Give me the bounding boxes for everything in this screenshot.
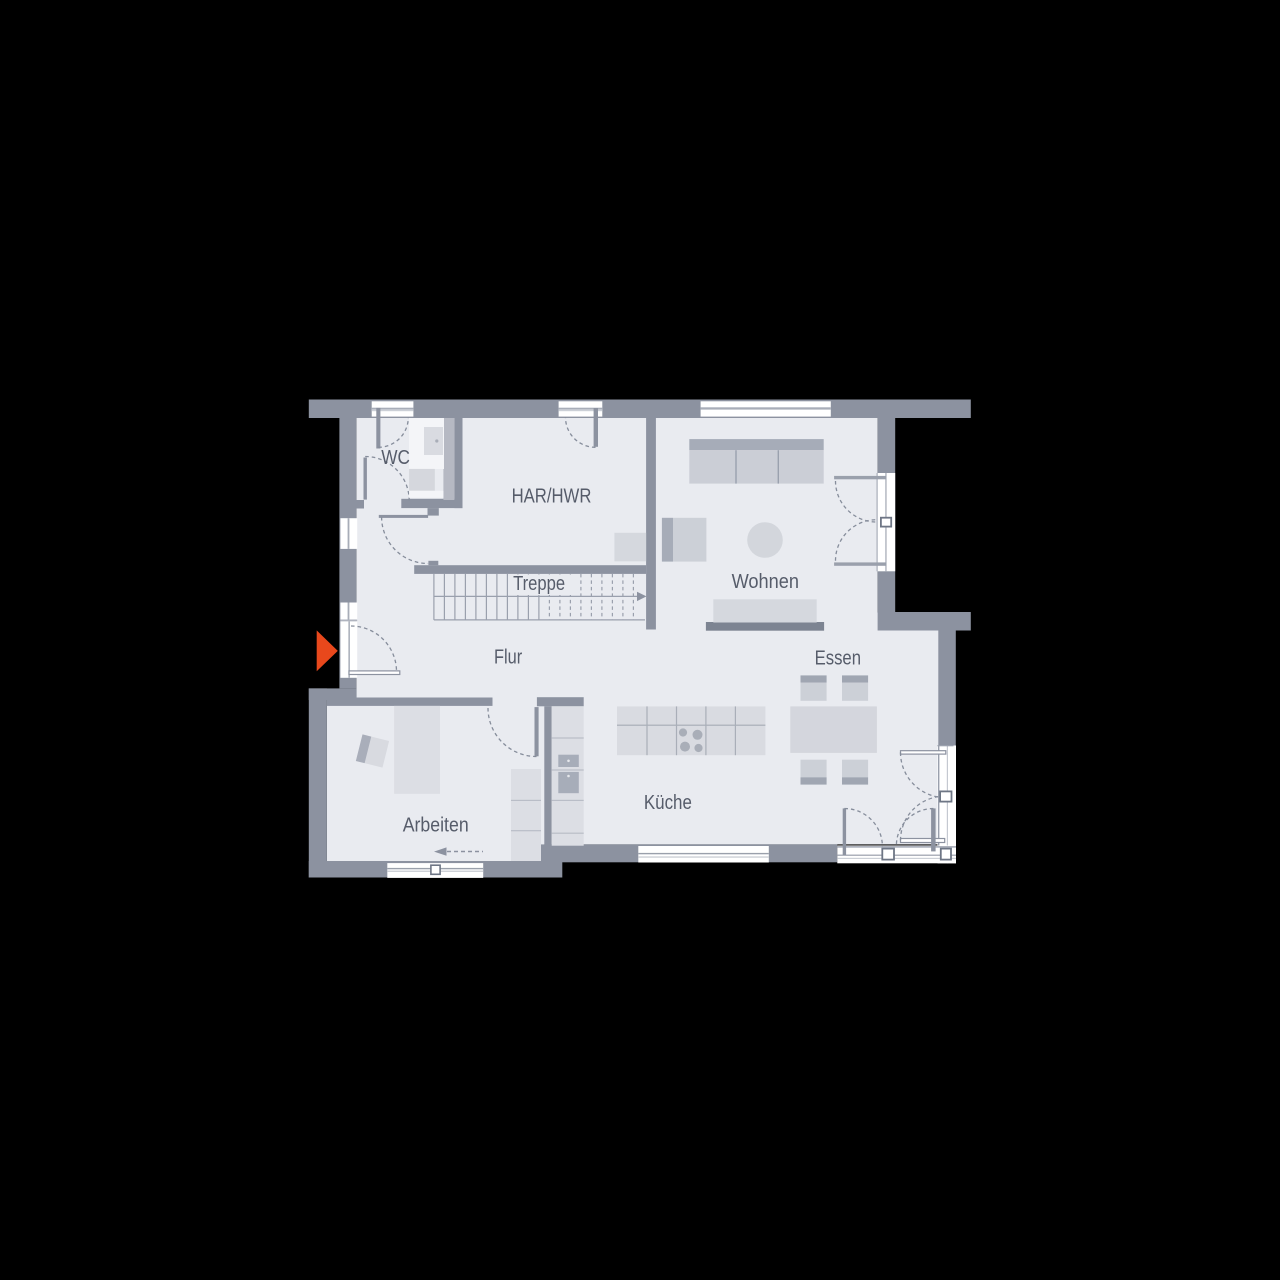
svg-text:Wohnen: Wohnen <box>732 571 799 593</box>
svg-text:WC: WC <box>381 447 410 469</box>
svg-text:Treppe: Treppe <box>513 573 565 595</box>
svg-text:Arbeiten: Arbeiten <box>403 814 469 836</box>
svg-text:Essen: Essen <box>815 648 861 670</box>
svg-text:Küche: Küche <box>644 792 692 814</box>
svg-text:Flur: Flur <box>494 647 522 669</box>
svg-text:HAR/HWR: HAR/HWR <box>512 485 592 507</box>
